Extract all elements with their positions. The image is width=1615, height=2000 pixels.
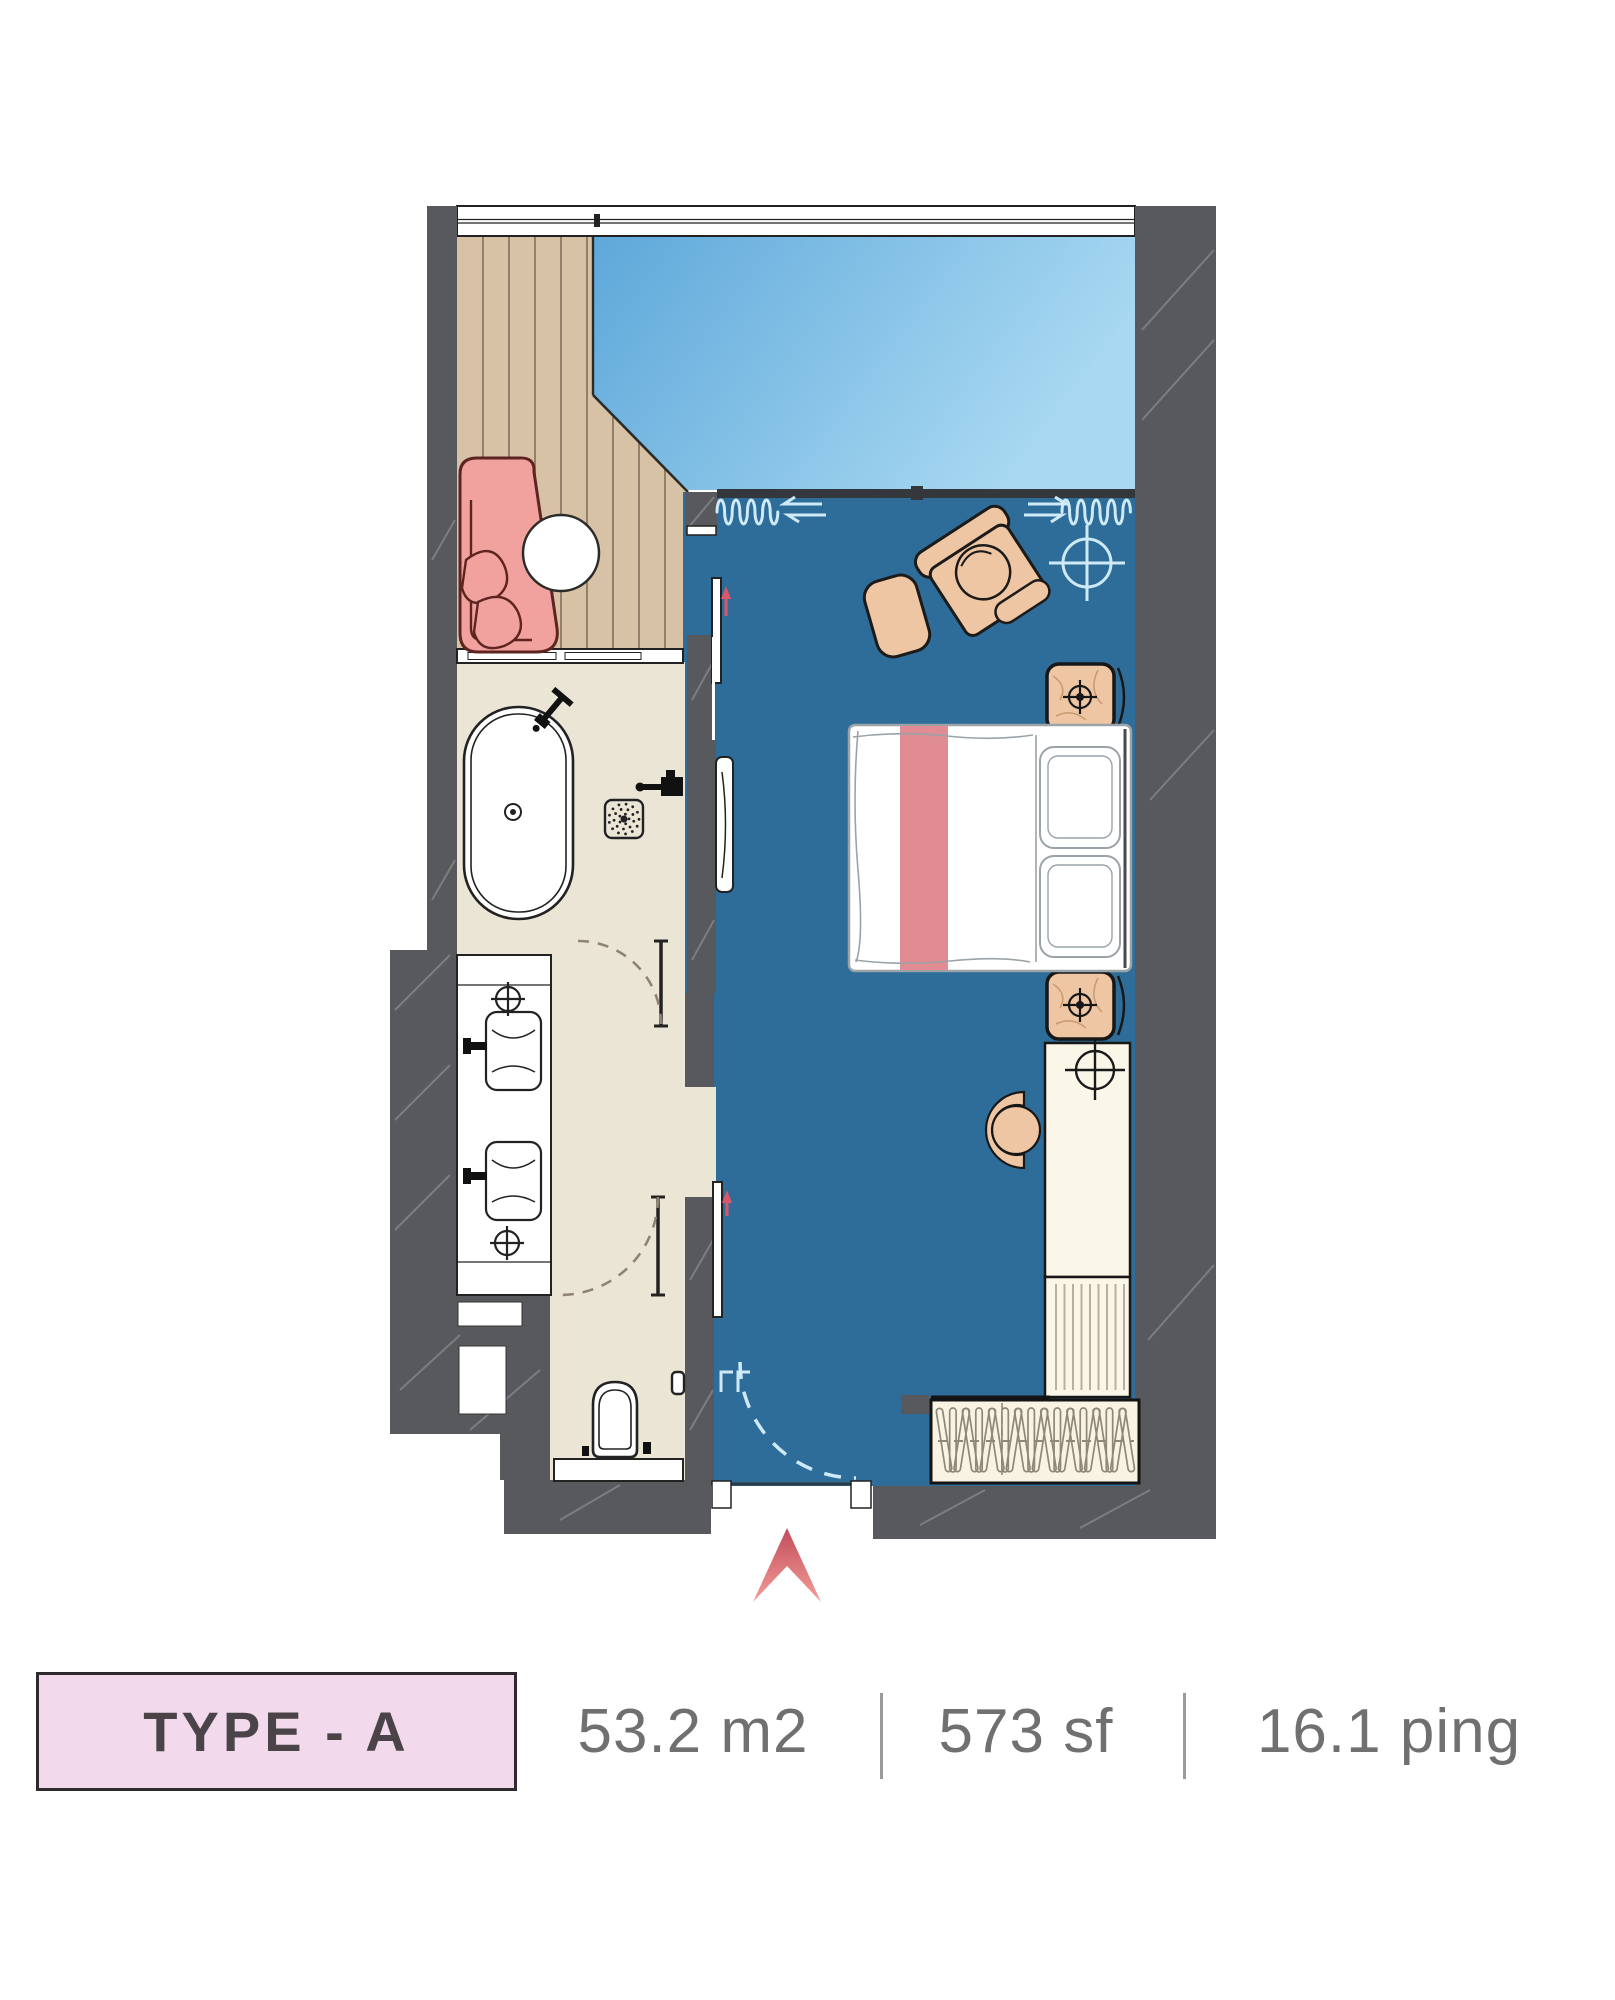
sink-basin [486,1142,541,1220]
minibar-cabinet [1045,1277,1130,1397]
floor-drain-icon [605,800,643,838]
bottom-right-wall [873,1486,1216,1539]
corridor-passage [683,1087,716,1197]
pillow [1040,856,1120,957]
right-wall [1135,206,1216,1492]
round-side-table [523,515,599,591]
bed [849,725,1131,971]
tv-wall [687,635,716,993]
tv-panel-icon [716,757,733,892]
balcony-glass-bay [593,236,1135,490]
toilet-enclosure-wall [685,1197,714,1486]
pillow [1040,747,1120,848]
cushion [462,551,507,603]
closet-end-wall [901,1395,929,1414]
window-mullion [717,489,1135,498]
sink-basin [486,1012,541,1090]
toilet-door-handle [672,1372,684,1394]
north-arrow-icon [753,1528,821,1602]
corridor-wall-upper [685,993,714,1087]
door-jamb [712,1481,731,1508]
left-shaft-wall [390,950,457,1295]
nightstand [1047,972,1124,1039]
corridor-sliding-door-icon [713,1182,722,1317]
cushion [474,597,521,648]
floor-plan [0,0,1615,2000]
door-jamb [851,1481,871,1508]
nightstand [1047,664,1124,731]
bed-runner-stripe [900,726,948,970]
window-mullion-tick [911,486,923,500]
top-window-band [457,206,1135,236]
pier-sill [687,526,716,535]
bottom-left-wall [504,1480,711,1534]
desk [1045,1040,1130,1277]
bathtub [464,707,573,919]
wardrobe-closet [931,1397,1139,1483]
